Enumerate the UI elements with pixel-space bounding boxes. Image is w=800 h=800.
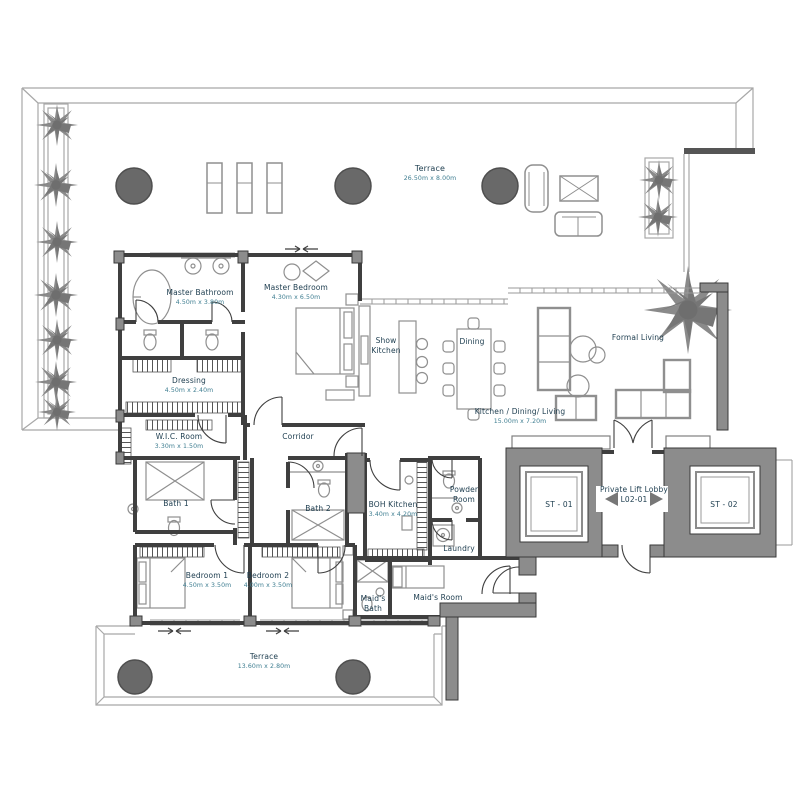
floor-plan-drawing — [0, 0, 800, 800]
sliding-door-arrows — [158, 246, 318, 634]
palm-plants — [34, 104, 732, 431]
furniture — [128, 258, 710, 619]
lobby-direction-arrows — [605, 492, 663, 506]
terrace-rail-bar — [684, 148, 755, 154]
outdoor-furniture — [207, 163, 602, 236]
floor-plan: Terrace26.50m x 8.00m Master Bathroom4.5… — [0, 0, 800, 800]
